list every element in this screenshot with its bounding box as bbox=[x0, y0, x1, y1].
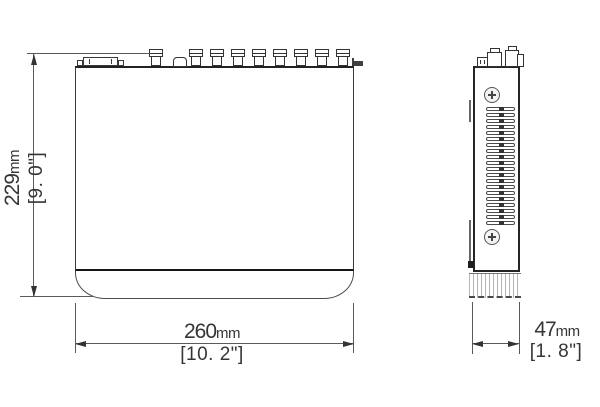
bnc-base bbox=[233, 57, 243, 66]
depth-metric-label: 47mm bbox=[517, 318, 597, 342]
bnc-cap bbox=[315, 49, 329, 57]
screw-icon-top bbox=[484, 87, 500, 103]
front-bezel-top-view bbox=[75, 271, 354, 299]
extension-line-top bbox=[27, 53, 150, 54]
bnc-connector bbox=[210, 49, 224, 66]
side-tab-foot bbox=[468, 261, 474, 268]
side-tab-upper bbox=[469, 100, 471, 122]
vent-slot bbox=[486, 125, 515, 129]
vent-slot bbox=[486, 179, 515, 183]
bnc-base bbox=[254, 57, 264, 66]
vent-slot bbox=[486, 131, 515, 135]
bnc-cap bbox=[189, 49, 203, 57]
vga-connector bbox=[83, 57, 118, 66]
rear-terminal-block bbox=[354, 61, 363, 66]
bnc-connector bbox=[315, 49, 329, 66]
vent-slot bbox=[486, 173, 515, 177]
vent-slot bbox=[486, 215, 515, 219]
vent-slot bbox=[486, 155, 515, 159]
bnc-connector bbox=[273, 49, 287, 66]
ventilation-grille bbox=[486, 107, 515, 225]
bnc-cap bbox=[231, 49, 245, 57]
bnc-base bbox=[212, 57, 222, 66]
screw-icon-bottom bbox=[484, 229, 500, 245]
vent-slot bbox=[486, 197, 515, 201]
arrowhead-down-icon bbox=[31, 286, 37, 297]
vent-slot bbox=[486, 113, 515, 117]
depth-imperial-label: [1. 8"] bbox=[516, 341, 596, 363]
vent-slot bbox=[486, 209, 515, 213]
bnc-cap bbox=[294, 49, 308, 57]
width-metric-label: 260mm bbox=[152, 320, 272, 344]
bnc-cap bbox=[252, 49, 266, 57]
dvr-dimension-drawing: 229mm [9. 0"] 260mm [10. 2"] bbox=[0, 0, 600, 407]
bnc-connector bbox=[189, 49, 203, 66]
vent-slot bbox=[486, 203, 515, 207]
connector-stub-side bbox=[517, 54, 524, 67]
connector-cap-side bbox=[490, 48, 500, 53]
bnc-base bbox=[338, 57, 348, 66]
height-metric-label: 229mm bbox=[2, 118, 26, 238]
vent-slot bbox=[486, 221, 515, 225]
vent-slot bbox=[486, 167, 515, 171]
arrowhead-left-icon bbox=[75, 341, 86, 347]
connector-block-side bbox=[487, 52, 502, 67]
vent-slot bbox=[486, 137, 515, 141]
vent-slot bbox=[486, 143, 515, 147]
width-imperial-label: [10. 2"] bbox=[147, 344, 277, 366]
arrowhead-left-icon bbox=[472, 341, 483, 347]
bnc-base bbox=[317, 57, 327, 66]
vent-slot bbox=[486, 149, 515, 153]
bnc-cap bbox=[210, 49, 224, 57]
height-imperial-label: [9. 0"] bbox=[26, 118, 48, 238]
arrowhead-right-icon bbox=[343, 341, 354, 347]
bnc-connector bbox=[231, 49, 245, 66]
bnc-connector bbox=[252, 49, 266, 66]
height-dimension-label: 229mm [9. 0"] bbox=[2, 118, 46, 238]
power-jack bbox=[173, 57, 187, 67]
bnc-base bbox=[275, 57, 285, 66]
vent-slot bbox=[486, 191, 515, 195]
bnc-connector bbox=[336, 49, 350, 66]
bnc-base bbox=[191, 57, 201, 66]
vent-slot bbox=[486, 107, 515, 111]
bnc-cap-side bbox=[508, 46, 517, 51]
arrowhead-up-icon bbox=[31, 54, 37, 65]
vent-slot bbox=[486, 119, 515, 123]
bnc-connector bbox=[294, 49, 308, 66]
bnc-cap bbox=[273, 49, 287, 57]
bnc-cap bbox=[149, 49, 163, 57]
bnc-cap bbox=[336, 49, 350, 57]
bnc-base bbox=[296, 57, 306, 66]
vent-slot bbox=[486, 185, 515, 189]
vga-screw-post-right bbox=[118, 60, 124, 66]
bnc-connector-output bbox=[149, 49, 163, 66]
vent-slot bbox=[486, 161, 515, 165]
bnc-base bbox=[151, 57, 161, 66]
chassis-body-top-view bbox=[75, 66, 354, 272]
front-bezel-side-view bbox=[469, 273, 521, 298]
side-tab-lower bbox=[469, 220, 471, 262]
